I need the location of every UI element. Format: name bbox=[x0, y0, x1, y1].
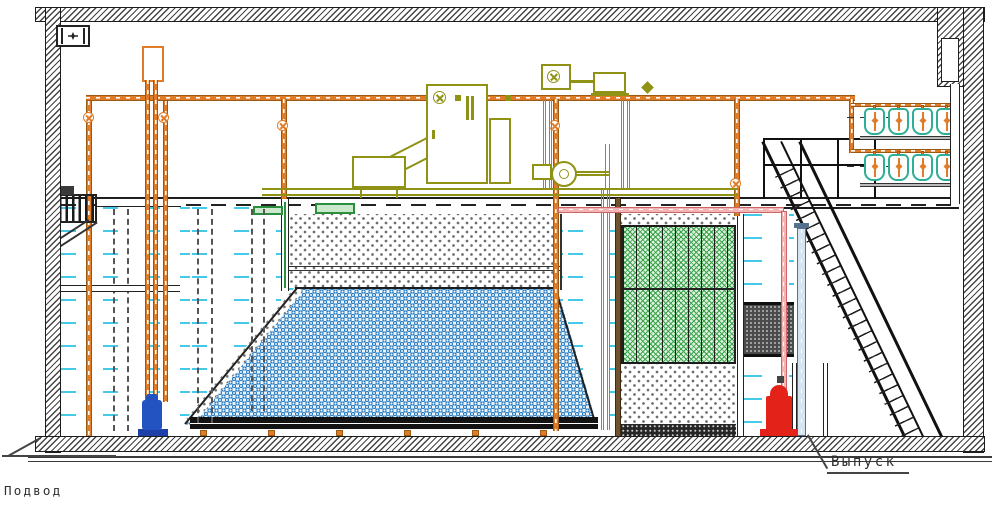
container-leg bbox=[396, 188, 398, 198]
cabinet-vent-slot bbox=[471, 96, 474, 120]
blower-base bbox=[591, 93, 629, 96]
blower-shaft bbox=[571, 80, 593, 83]
partition-wall-green-line bbox=[284, 202, 286, 288]
treated-water-pipe bbox=[558, 207, 784, 213]
equipment-pipe bbox=[627, 99, 630, 190]
pump-riser bbox=[605, 144, 610, 190]
cabinet-fan-icon bbox=[433, 91, 446, 104]
aeration-plate-line bbox=[190, 423, 598, 424]
left-wall bbox=[45, 7, 61, 453]
drop-pipe bbox=[553, 99, 559, 431]
container-leg bbox=[360, 188, 362, 198]
launder-bracket bbox=[315, 203, 355, 214]
platform-beam bbox=[97, 198, 181, 207]
inlet-screen bbox=[57, 194, 97, 223]
channel-edge-line bbox=[560, 214, 562, 290]
outlet-pump-body bbox=[766, 396, 792, 431]
inlet-pump-base bbox=[138, 429, 168, 436]
blower-fan-icon bbox=[547, 70, 560, 83]
cabinet-vent-slot bbox=[466, 96, 469, 120]
gravel-layer bbox=[287, 214, 560, 288]
inlet-label-line: Подвод bbox=[4, 484, 72, 497]
blower-motor bbox=[593, 72, 626, 93]
pump-discharge-pipe bbox=[153, 80, 158, 402]
cabinet-handle bbox=[432, 130, 435, 139]
pump-guide-rail bbox=[251, 209, 265, 411]
treatment-vessel bbox=[864, 108, 885, 135]
pump-guide-rail bbox=[197, 209, 213, 423]
equipment-pipe bbox=[621, 99, 624, 190]
outlet-label: Выпуск bbox=[831, 454, 897, 470]
outlet-channel-wall bbox=[823, 363, 828, 437]
biofilter-top-line bbox=[621, 225, 736, 227]
stair-railing-grid bbox=[763, 138, 878, 199]
pump-motor bbox=[532, 164, 552, 180]
pump-discharge-pipe bbox=[145, 80, 150, 402]
screenings-container bbox=[352, 156, 406, 188]
collector-pipe bbox=[262, 188, 738, 196]
media-retainer-wall bbox=[615, 198, 621, 437]
outlet-standpipe-cap bbox=[794, 223, 809, 228]
outlet-pump-valve bbox=[777, 376, 784, 383]
pump-guide-rail bbox=[113, 209, 129, 431]
vessel-riser bbox=[849, 99, 854, 153]
valve-icon bbox=[277, 120, 288, 131]
gravel-divider-line bbox=[287, 266, 560, 267]
vessel-manifold bbox=[851, 149, 957, 153]
side-panel bbox=[489, 118, 511, 184]
biofilter-bottom-gravel bbox=[621, 363, 736, 424]
inlet-pump-body bbox=[142, 400, 162, 430]
valve-icon bbox=[158, 112, 169, 123]
valve-icon bbox=[83, 112, 94, 123]
right-wall bbox=[963, 7, 984, 453]
biofilter-green-media bbox=[621, 226, 736, 363]
pipe-marker bbox=[455, 95, 461, 101]
vessel-shelf bbox=[860, 136, 960, 140]
biofilter-mid-line bbox=[621, 288, 736, 290]
olive-channel-pipe bbox=[607, 189, 610, 430]
olive-channel-pipe bbox=[601, 189, 604, 430]
partition-wall-right bbox=[737, 214, 744, 437]
riser-pipe bbox=[86, 101, 92, 437]
outlet-label-underline bbox=[827, 472, 909, 474]
media-bed-top-line bbox=[295, 287, 558, 289]
biofilter-bottom-line bbox=[621, 362, 736, 364]
outlet-standpipe bbox=[797, 228, 806, 436]
top-wall bbox=[35, 7, 985, 22]
inlet-leader-underline bbox=[2, 455, 116, 457]
drop-pipe bbox=[281, 99, 287, 199]
treatment-plant-section-drawing: Подвод сточных вод на очистку Выпуск bbox=[0, 0, 1000, 512]
dosing-tank bbox=[142, 46, 164, 82]
treatment-vessel bbox=[888, 154, 909, 181]
inlet-pump-cap bbox=[146, 394, 158, 402]
treatment-vessel bbox=[912, 108, 933, 135]
water-level-line bbox=[61, 204, 955, 206]
treatment-vessel bbox=[912, 154, 933, 181]
gravel-divider-line bbox=[287, 270, 560, 271]
treatment-vessel bbox=[888, 108, 909, 135]
vessel-shelf bbox=[860, 183, 960, 187]
vent-duct bbox=[950, 84, 960, 204]
inlet-screen-motor bbox=[59, 186, 74, 195]
floor-slab bbox=[35, 436, 985, 452]
pipe-marker bbox=[505, 95, 511, 101]
outlet-pump-base bbox=[760, 429, 798, 436]
wall-recess bbox=[941, 38, 959, 82]
drop-pipe bbox=[734, 99, 740, 216]
vessel-manifold bbox=[851, 103, 957, 107]
pipe-fitting-diamond bbox=[641, 81, 654, 94]
inlet-label: Подвод сточных вод на очистку bbox=[4, 458, 72, 512]
treatment-vessel bbox=[864, 154, 885, 181]
pump-volute-inner bbox=[559, 169, 569, 179]
riser-pipe bbox=[163, 101, 168, 402]
